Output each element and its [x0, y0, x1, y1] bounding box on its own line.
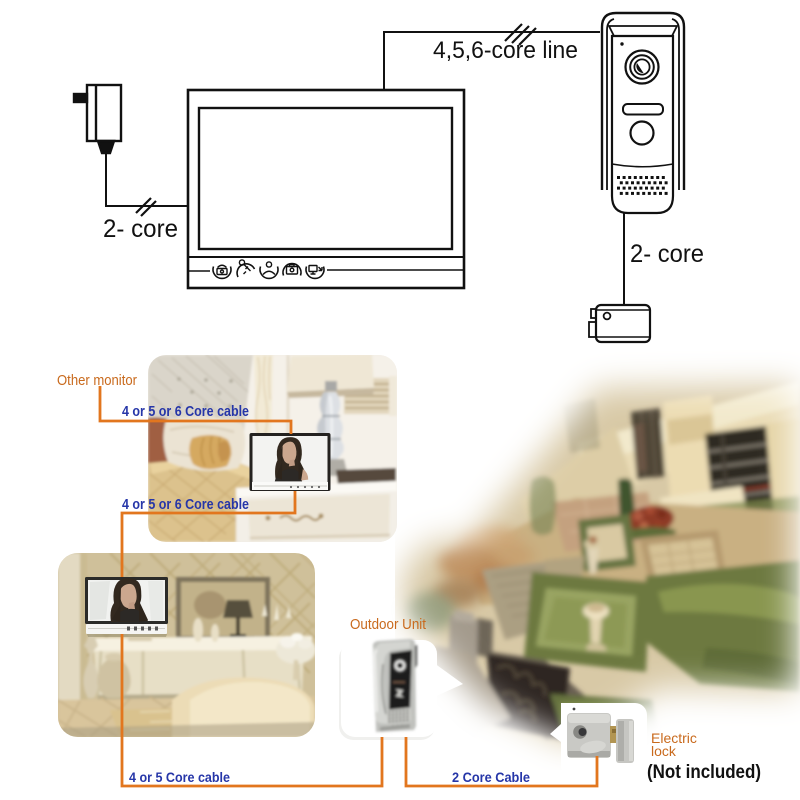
svg-text:4 or 5 or 6 Core cable: 4 or 5 or 6 Core cable — [122, 404, 249, 420]
svg-text:4 or 5 or 6 Core cable: 4 or 5 or 6 Core cable — [122, 497, 249, 513]
svg-text:4 or 5 Core cable: 4 or 5 Core cable — [129, 769, 230, 785]
svg-text:2- core: 2- core — [103, 215, 178, 243]
svg-text:(Not included): (Not included) — [647, 762, 761, 783]
svg-text:Outdoor Unit: Outdoor Unit — [350, 617, 426, 633]
svg-text:2- core: 2- core — [630, 240, 704, 268]
svg-text:4,5,6-core line: 4,5,6-core line — [433, 37, 578, 64]
svg-text:Other monitor: Other monitor — [57, 373, 137, 389]
svg-text:2 Core Cable: 2 Core Cable — [452, 769, 530, 785]
svg-text:lock: lock — [651, 743, 677, 759]
